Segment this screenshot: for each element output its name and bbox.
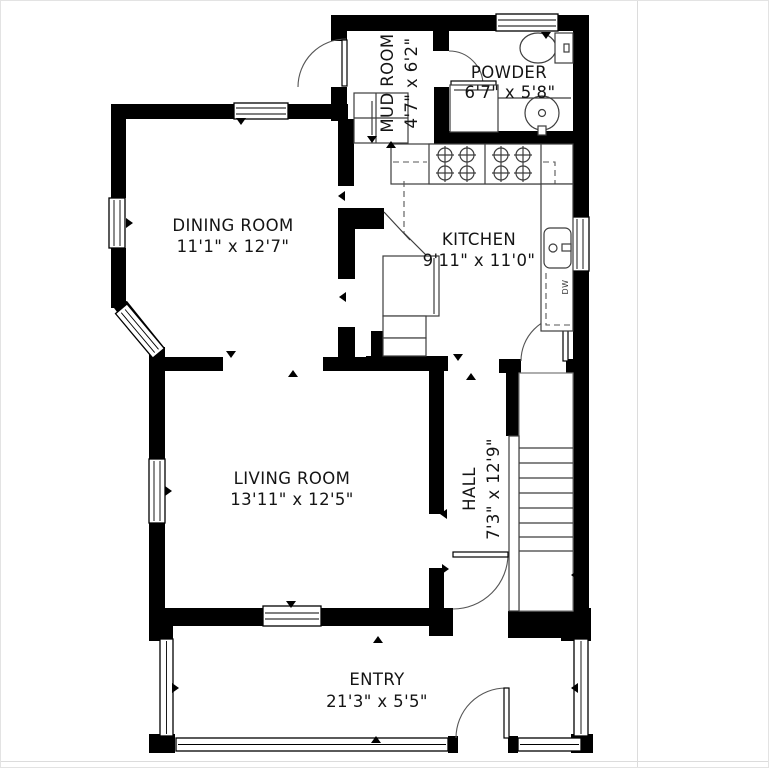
kitchen-fixtures: DW [383,144,573,356]
living-room-dims: 13'11" x 12'5" [230,490,354,509]
mud-room-dims: 4'7" x 6'2" [402,38,421,129]
hall-label: HALL [460,467,479,511]
stove-icon [429,144,541,184]
window-living-bottom [263,606,321,626]
hall-dims: 7'3" x 12'9" [484,438,503,540]
powder-label: POWDER [471,63,547,82]
window-dining-top [234,103,288,119]
window-entry-bottom-right [518,738,581,751]
stairs [509,373,573,611]
stair-railing [509,436,519,611]
mud-room-label: MUD ROOM [378,33,397,132]
dining-room-dims: 11'1" x 12'7" [177,237,290,256]
entry-label: ENTRY [349,670,405,689]
entry-front-door [456,688,509,738]
powder-dims: 6'7" x 5'8" [465,83,556,102]
window-powder-top [496,14,558,31]
dishwasher-label: DW [561,279,570,294]
window-entry-left [160,639,173,736]
window-dining-left [109,198,125,248]
dining-room-label: DINING ROOM [172,216,293,235]
kitchen-sink-icon [544,228,571,268]
entry-dims: 21'3" x 5'5" [326,692,428,711]
kitchen-dims: 9'11" x 11'0" [423,251,536,270]
floor-plan-svg: DW [1,1,769,768]
hall-entry-door [453,552,508,609]
refrigerator-icon [383,256,439,356]
window-bay-angled [116,304,165,358]
floor-plan-image: DW [0,0,769,768]
mud-room-exterior-door [298,39,347,87]
window-kitchen-right [571,217,589,271]
kitchen-label: KITCHEN [442,230,516,249]
window-entry-bottom-long [176,738,448,751]
living-room-label: LIVING ROOM [234,469,351,488]
window-living-left [149,459,165,523]
